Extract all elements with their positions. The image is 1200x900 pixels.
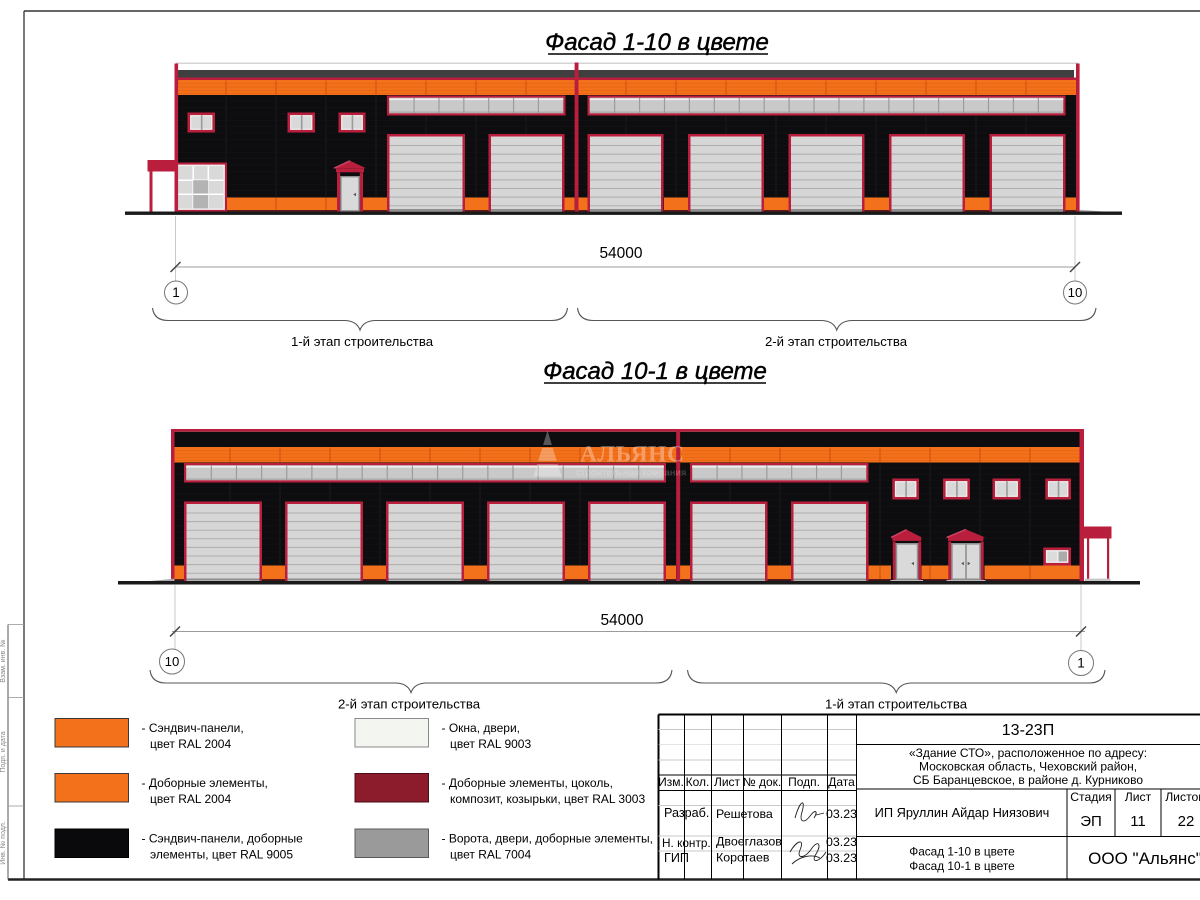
svg-text:ЭП: ЭП — [1080, 813, 1102, 830]
svg-text:ИП Яруллин Айдар Ниязович: ИП Яруллин Айдар Ниязович — [875, 805, 1050, 820]
svg-text:- Сэндвич-панели, доборные: - Сэндвич-панели, доборные — [142, 832, 304, 846]
svg-text:10: 10 — [1068, 285, 1083, 300]
svg-text:ГИП: ГИП — [664, 851, 689, 865]
svg-text:цвет RAL 7004: цвет RAL 7004 — [450, 848, 531, 862]
svg-text:Фасад 1-10 в цвете: Фасад 1-10 в цвете — [909, 845, 1015, 859]
svg-text:11: 11 — [1130, 813, 1146, 830]
svg-text:Н. контр.: Н. контр. — [662, 836, 711, 850]
svg-text:- Окна, двери,: - Окна, двери, — [442, 721, 521, 735]
svg-text:54000: 54000 — [599, 245, 642, 262]
svg-text:цвет RAL 2004: цвет RAL 2004 — [150, 792, 231, 806]
svg-text:1: 1 — [172, 285, 180, 300]
svg-text:2-й этап строительства: 2-й этап строительства — [765, 334, 908, 349]
svg-text:Кол.: Кол. — [686, 775, 710, 789]
svg-text:2-й этап строительства: 2-й этап строительства — [338, 697, 481, 712]
svg-text:ООО "Альянс": ООО "Альянс" — [1088, 849, 1200, 868]
svg-text:АЛЬЯНС: АЛЬЯНС — [580, 442, 685, 468]
svg-text:Подп.: Подп. — [788, 775, 820, 789]
svg-text:- Доборные элементы,: - Доборные элементы, — [142, 776, 268, 790]
svg-text:13-23П: 13-23П — [1002, 722, 1054, 739]
svg-text:Разраб.: Разраб. — [664, 806, 709, 820]
svg-text:Коротаев: Коротаев — [716, 851, 770, 865]
svg-text:цвет RAL 9003: цвет RAL 9003 — [450, 737, 531, 751]
svg-text:1-й этап строительства: 1-й этап строительства — [825, 697, 968, 712]
svg-text:строительная компания: строительная компания — [576, 468, 686, 479]
svg-text:элементы, цвет RAL 9005: элементы, цвет RAL 9005 — [150, 848, 293, 862]
svg-text:цвет RAL 2004: цвет RAL 2004 — [150, 737, 231, 751]
svg-text:СБ Баранцевское, в районе д. К: СБ Баранцевское, в районе д. Курниково — [913, 773, 1143, 787]
svg-text:1: 1 — [1077, 656, 1085, 671]
svg-text:№ док.: № док. — [743, 775, 781, 789]
svg-text:03.23: 03.23 — [826, 807, 857, 821]
svg-text:03.23: 03.23 — [826, 835, 857, 849]
svg-text:Фасад 10-1 в цвете: Фасад 10-1 в цвете — [543, 358, 767, 385]
svg-text:Взам. инв. №: Взам. инв. № — [0, 639, 7, 682]
svg-text:Изм.: Изм. — [658, 775, 684, 789]
svg-text:композит, козырьки, цвет RAL 3: композит, козырьки, цвет RAL 3003 — [450, 792, 645, 806]
svg-text:Листов: Листов — [1165, 790, 1200, 804]
svg-text:Лист: Лист — [1125, 790, 1152, 804]
svg-text:Лист: Лист — [714, 775, 741, 789]
svg-text:22: 22 — [1178, 813, 1195, 830]
svg-text:Стадия: Стадия — [1070, 790, 1112, 804]
svg-text:Фасад 10-1 в цвете: Фасад 10-1 в цвете — [909, 859, 1015, 873]
svg-text:«Здание СТО», расположенное по: «Здание СТО», расположенное по адресу: — [909, 746, 1147, 760]
svg-text:Двоеглазов: Двоеглазов — [716, 835, 782, 849]
svg-text:1-й этап строительства: 1-й этап строительства — [291, 334, 434, 349]
svg-text:Инв. № подл.: Инв. № подл. — [0, 821, 7, 865]
svg-text:- Сэндвич-панели,: - Сэндвич-панели, — [142, 721, 244, 735]
svg-text:10: 10 — [165, 654, 180, 669]
svg-text:03.23: 03.23 — [826, 851, 857, 865]
svg-text:Решетова: Решетова — [716, 807, 773, 821]
svg-text:- Ворота, двери, доборные элем: - Ворота, двери, доборные элементы, — [442, 832, 653, 846]
svg-text:54000: 54000 — [600, 612, 643, 629]
svg-text:Дата: Дата — [828, 775, 855, 789]
svg-text:Фасад 1-10 в цвете: Фасад 1-10 в цвете — [545, 29, 769, 56]
svg-text:Подп. и дата: Подп. и дата — [0, 731, 7, 772]
svg-text:- Доборные элементы, цоколь,: - Доборные элементы, цоколь, — [442, 776, 613, 790]
svg-text:Московская область, Чеховский: Московская область, Чеховский район, — [919, 760, 1137, 774]
